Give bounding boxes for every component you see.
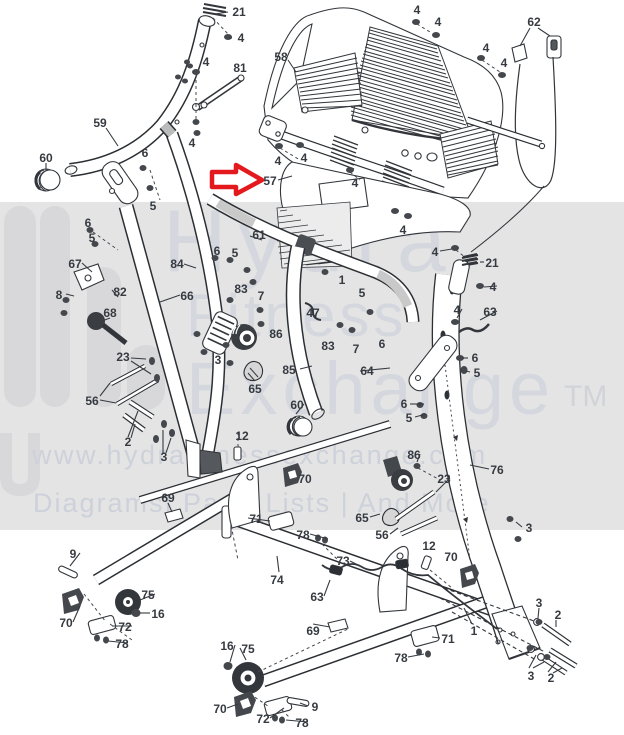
svg-text:71: 71 xyxy=(441,632,455,646)
svg-text:70: 70 xyxy=(444,550,458,564)
svg-text:4: 4 xyxy=(483,41,490,55)
svg-text:70: 70 xyxy=(298,472,312,486)
svg-text:72: 72 xyxy=(118,620,132,634)
svg-text:12: 12 xyxy=(235,429,249,443)
svg-text:78: 78 xyxy=(295,716,309,730)
svg-text:6: 6 xyxy=(472,351,479,365)
svg-text:83: 83 xyxy=(321,339,335,353)
svg-text:85: 85 xyxy=(282,363,296,377)
svg-text:64: 64 xyxy=(360,364,374,378)
svg-text:6: 6 xyxy=(379,337,386,351)
svg-text:21: 21 xyxy=(485,256,499,270)
svg-text:47: 47 xyxy=(306,306,320,320)
svg-text:2: 2 xyxy=(125,435,132,449)
svg-text:63: 63 xyxy=(483,305,497,319)
svg-text:56: 56 xyxy=(375,528,389,542)
svg-text:3: 3 xyxy=(528,669,535,683)
svg-text:78: 78 xyxy=(296,528,310,542)
svg-text:7: 7 xyxy=(353,342,360,356)
svg-text:5: 5 xyxy=(474,366,481,380)
svg-text:62: 62 xyxy=(527,15,541,29)
svg-text:4: 4 xyxy=(189,136,196,150)
svg-text:4: 4 xyxy=(501,56,508,70)
svg-text:6: 6 xyxy=(85,216,92,230)
svg-text:4: 4 xyxy=(301,151,308,165)
svg-text:60: 60 xyxy=(290,398,304,412)
svg-text:3: 3 xyxy=(536,596,543,610)
svg-text:3: 3 xyxy=(215,353,222,367)
svg-text:70: 70 xyxy=(59,616,73,630)
svg-text:8: 8 xyxy=(56,288,63,302)
svg-text:63: 63 xyxy=(310,590,324,604)
svg-text:5: 5 xyxy=(150,199,157,213)
svg-text:2: 2 xyxy=(548,671,555,685)
svg-text:4: 4 xyxy=(352,176,359,190)
svg-text:84: 84 xyxy=(170,257,184,271)
svg-text:74: 74 xyxy=(270,573,284,587)
svg-text:81: 81 xyxy=(233,61,247,75)
svg-text:69: 69 xyxy=(306,624,320,638)
svg-text:4: 4 xyxy=(203,55,210,69)
svg-text:12: 12 xyxy=(422,539,436,553)
svg-text:5: 5 xyxy=(89,231,96,245)
svg-text:4: 4 xyxy=(435,15,442,29)
svg-text:60: 60 xyxy=(39,151,53,165)
svg-text:78: 78 xyxy=(394,651,408,665)
svg-text:59: 59 xyxy=(93,116,107,130)
svg-text:4: 4 xyxy=(454,303,461,317)
svg-text:23: 23 xyxy=(116,350,130,364)
svg-text:4: 4 xyxy=(400,223,407,237)
svg-text:3: 3 xyxy=(161,450,168,464)
svg-text:3: 3 xyxy=(526,521,533,535)
svg-text:70: 70 xyxy=(213,702,227,716)
svg-text:23: 23 xyxy=(437,472,451,486)
svg-text:6: 6 xyxy=(401,397,408,411)
svg-text:1: 1 xyxy=(471,624,478,638)
svg-text:66: 66 xyxy=(180,289,194,303)
svg-text:4: 4 xyxy=(275,154,282,168)
svg-text:6: 6 xyxy=(214,244,221,258)
svg-text:2: 2 xyxy=(555,608,562,622)
svg-text:5: 5 xyxy=(359,286,366,300)
svg-text:57: 57 xyxy=(263,174,277,188)
svg-text:78: 78 xyxy=(115,637,129,651)
svg-text:72: 72 xyxy=(256,712,270,726)
svg-text:58: 58 xyxy=(274,50,288,64)
svg-text:71: 71 xyxy=(249,512,263,526)
svg-text:73: 73 xyxy=(336,554,350,568)
svg-text:16: 16 xyxy=(151,607,165,621)
svg-text:6: 6 xyxy=(142,146,149,160)
svg-text:75: 75 xyxy=(141,588,155,602)
svg-text:4: 4 xyxy=(414,3,421,17)
svg-text:82: 82 xyxy=(113,285,127,299)
svg-text:65: 65 xyxy=(355,511,369,525)
svg-text:21: 21 xyxy=(232,5,246,19)
svg-text:56: 56 xyxy=(85,394,99,408)
svg-text:4: 4 xyxy=(238,31,245,45)
svg-text:5: 5 xyxy=(406,411,413,425)
svg-text:83: 83 xyxy=(234,282,248,296)
svg-text:7: 7 xyxy=(258,289,265,303)
svg-text:1: 1 xyxy=(339,273,346,287)
svg-text:4: 4 xyxy=(490,280,497,294)
svg-text:16: 16 xyxy=(220,639,234,653)
svg-text:86: 86 xyxy=(269,327,283,341)
svg-text:TM: TM xyxy=(564,380,607,413)
svg-text:67: 67 xyxy=(68,257,82,271)
svg-text:68: 68 xyxy=(103,306,117,320)
svg-text:4: 4 xyxy=(432,245,439,259)
svg-text:61: 61 xyxy=(252,228,266,242)
svg-text:86: 86 xyxy=(407,448,421,462)
svg-text:9: 9 xyxy=(70,547,77,561)
svg-text:75: 75 xyxy=(241,642,255,656)
svg-text:69: 69 xyxy=(161,491,175,505)
svg-text:65: 65 xyxy=(248,382,262,396)
svg-text:Exchange: Exchange xyxy=(186,347,555,430)
svg-text:9: 9 xyxy=(312,700,319,714)
svg-text:5: 5 xyxy=(232,246,239,260)
svg-text:76: 76 xyxy=(490,463,504,477)
